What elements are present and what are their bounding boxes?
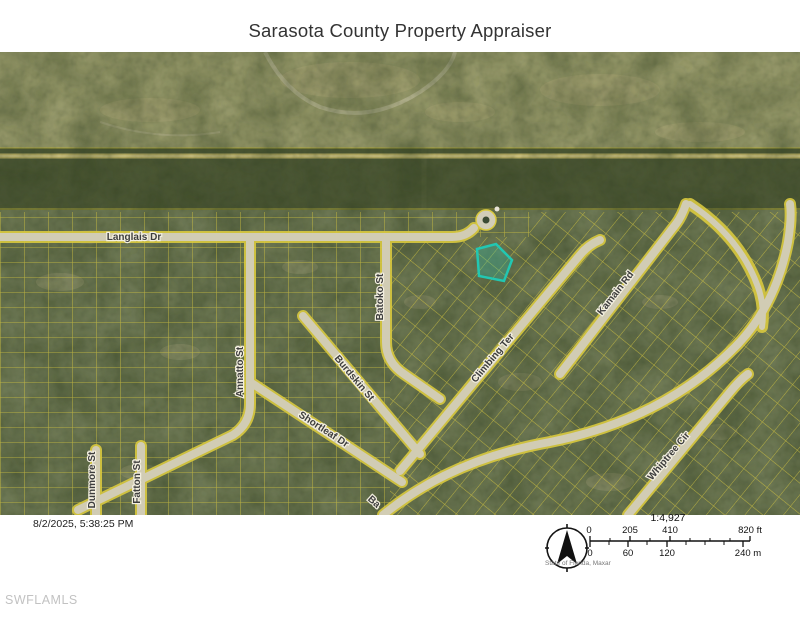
street-label-batoko: Batoko St — [375, 273, 386, 320]
scale-meter-label: 60 — [623, 548, 634, 559]
page-title: Sarasota County Property Appraiser — [0, 20, 800, 42]
scale-meter-label: 0 — [587, 548, 592, 559]
scale-feet-label: 0 — [586, 525, 591, 536]
scale-meter-label: 240 m — [735, 548, 761, 559]
street-label-langlais: Langlais Dr — [107, 232, 162, 243]
scale-feet-label: 410 — [662, 525, 678, 536]
street-label-fatton: Fatton St — [132, 460, 143, 504]
aerial-map-image: Langlais Dr Batoko St Annatto St Burdski… — [0, 52, 800, 515]
scale-meter-label: 120 — [659, 548, 675, 559]
mls-watermark: SWFLAMLS — [5, 593, 78, 607]
basemap-attribution: State of Florida, Maxar — [545, 560, 611, 567]
street-label-annatto: Annatto St — [235, 346, 246, 397]
street-label-dunmore: Dunmore St — [87, 451, 98, 508]
scale-feet-label: 820 ft — [738, 525, 762, 536]
scale-ratio: 1:4,927 — [630, 512, 706, 524]
map-svg: Langlais Dr Batoko St Annatto St Burdski… — [0, 52, 800, 515]
timestamp: 8/2/2025, 5:38:25 PM — [33, 518, 133, 530]
scale-feet-label: 205 — [622, 525, 638, 536]
